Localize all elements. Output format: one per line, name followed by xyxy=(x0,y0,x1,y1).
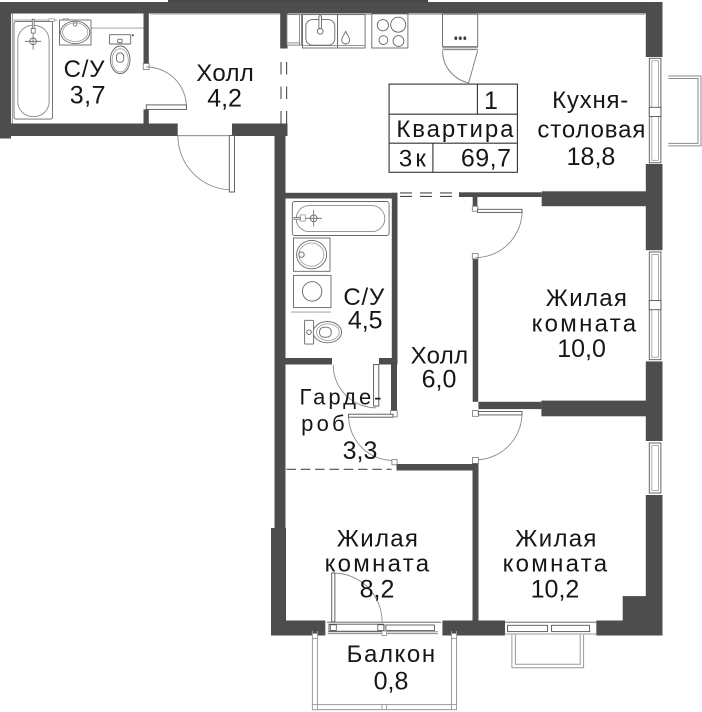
svg-text:комната: комната xyxy=(325,550,432,577)
svg-text:69,7: 69,7 xyxy=(461,144,512,172)
svg-text:комната: комната xyxy=(532,311,639,338)
svg-text:4,5: 4,5 xyxy=(348,306,383,334)
svg-text:6,0: 6,0 xyxy=(422,365,457,393)
svg-text:Жилая: Жилая xyxy=(515,525,597,552)
svg-text:3,7: 3,7 xyxy=(70,82,106,110)
svg-text:8,2: 8,2 xyxy=(360,575,395,603)
svg-text:3,3: 3,3 xyxy=(343,437,378,465)
svg-text:4,2: 4,2 xyxy=(207,84,242,112)
svg-text:столовая: столовая xyxy=(537,116,646,143)
svg-text:1: 1 xyxy=(484,87,498,115)
svg-text:Квартира: Квартира xyxy=(396,116,515,143)
svg-text:Жилая: Жилая xyxy=(546,285,628,312)
svg-text:0,8: 0,8 xyxy=(374,668,409,696)
svg-text:Кухня-: Кухня- xyxy=(552,87,629,114)
svg-text:10,0: 10,0 xyxy=(557,335,606,363)
svg-text:С/У: С/У xyxy=(64,56,106,83)
svg-text:18,8: 18,8 xyxy=(567,143,616,171)
svg-text:Балкон: Балкон xyxy=(347,641,437,668)
svg-text:роб: роб xyxy=(301,411,348,436)
svg-text:Жилая: Жилая xyxy=(337,525,419,552)
svg-text:10,2: 10,2 xyxy=(531,575,580,603)
svg-text:Холл: Холл xyxy=(196,60,254,87)
svg-text:Гарде-: Гарде- xyxy=(299,385,384,410)
svg-text:3к: 3к xyxy=(399,145,429,172)
svg-text:комната: комната xyxy=(503,550,610,577)
